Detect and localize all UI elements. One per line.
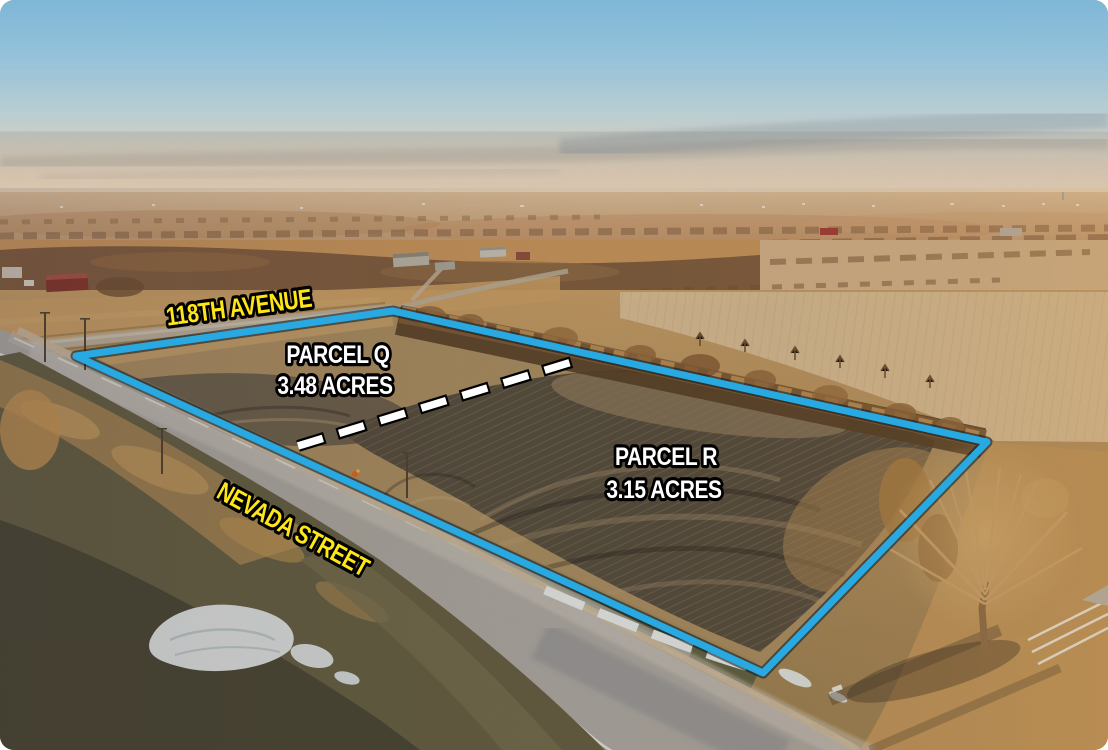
svg-text:PARCEL R: PARCEL R — [615, 442, 718, 470]
svg-text:PARCEL Q: PARCEL Q — [286, 340, 389, 368]
parcel-q-area-label: 3.48 ACRES — [277, 371, 392, 399]
sky — [0, 0, 1108, 205]
parcel-q-name-label: PARCEL Q — [286, 340, 389, 368]
photo-grain — [0, 188, 1108, 750]
parcel-r-name-label: PARCEL R — [615, 442, 718, 470]
svg-text:3.15 ACRES: 3.15 ACRES — [606, 475, 721, 503]
aerial-parcel-photo: 118TH AVENUE PARCEL Q 3.48 ACRES PARCEL … — [0, 0, 1108, 750]
parcel-r-area-label: 3.15 ACRES — [606, 475, 721, 503]
svg-text:3.48 ACRES: 3.48 ACRES — [277, 371, 392, 399]
aerial-scene: 118TH AVENUE PARCEL Q 3.48 ACRES PARCEL … — [0, 0, 1108, 750]
